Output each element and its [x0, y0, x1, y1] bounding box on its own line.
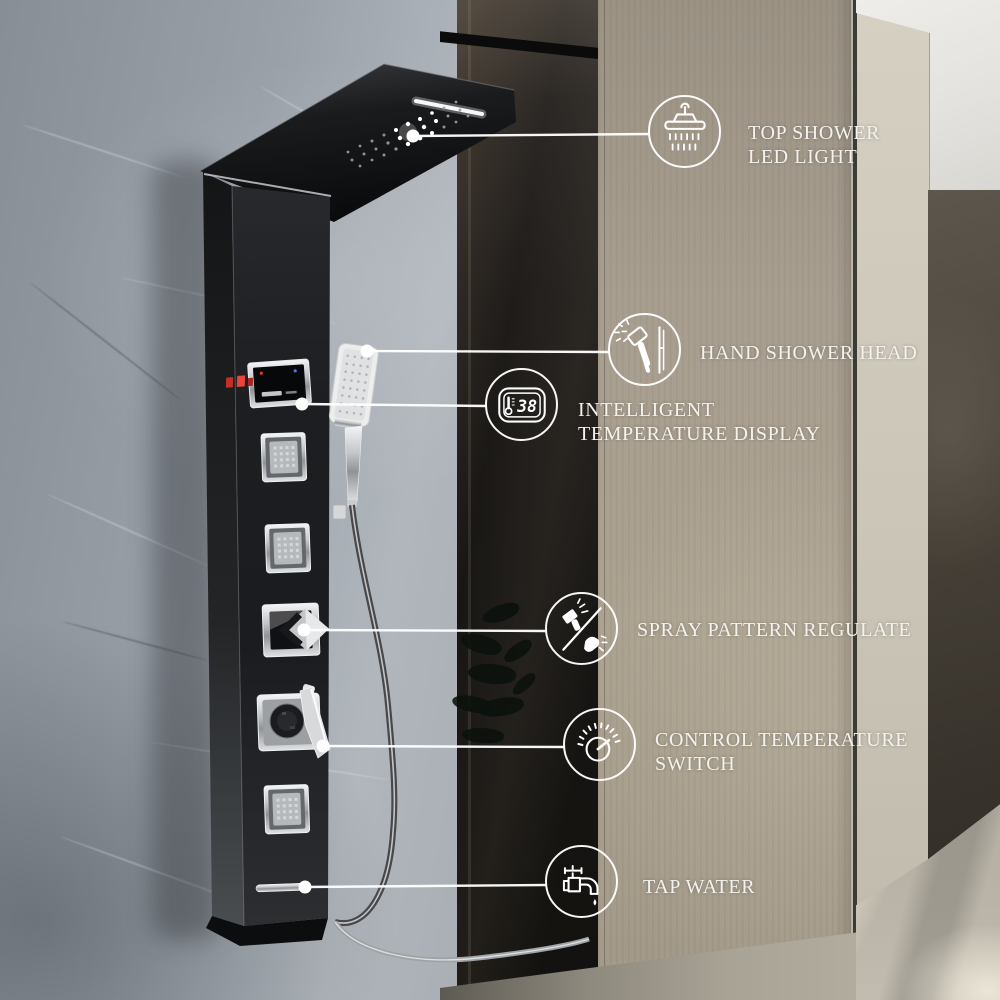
label-line: INTELLIGENT	[578, 399, 820, 423]
callout-dot-top-shower	[407, 130, 420, 143]
label-line: LED LIGHT	[748, 146, 880, 170]
temperature-display-icon: 38	[491, 374, 553, 436]
temperature-dial-icon	[569, 714, 631, 776]
callout-dot-tap-water	[299, 881, 312, 894]
label-tap-water: TAP WATER	[643, 876, 755, 900]
callout-line-tap-water	[305, 885, 547, 887]
label-line: TAP WATER	[643, 876, 755, 900]
label-control-temperature: CONTROL TEMPERATURE SWITCH	[655, 729, 908, 776]
tap-water-icon	[551, 851, 613, 913]
spray-pattern-callout-circle	[545, 592, 618, 665]
hand-shower-icon	[614, 319, 676, 381]
label-line: CONTROL TEMPERATURE	[655, 729, 908, 753]
temperature-display-callout-circle: 38	[485, 368, 558, 441]
callout-line-control-temperature	[323, 746, 565, 747]
label-line: SWITCH	[655, 753, 908, 777]
callout-line-spray-pattern	[304, 630, 547, 631]
hand-shower-callout-circle	[608, 313, 681, 386]
spray-pattern-icon	[551, 598, 613, 660]
top-shower-callout-circle	[648, 95, 721, 168]
callout-dot-spray-pattern	[298, 624, 311, 637]
callout-line-top-shower	[413, 134, 650, 136]
label-top-shower: TOP SHOWER LED LIGHT	[748, 122, 880, 169]
top-shower-led-icon	[654, 101, 716, 163]
label-line: SPRAY PATTERN REGULATE	[637, 619, 911, 643]
callout-line-temperature-display	[302, 404, 487, 406]
tap-water-callout-circle	[545, 845, 618, 918]
label-spray-pattern: SPRAY PATTERN REGULATE	[637, 619, 911, 643]
callout-dot-temperature-display	[296, 398, 309, 411]
label-line: TEMPERATURE DISPLAY	[578, 423, 820, 447]
label-line: HAND SHOWER HEAD	[700, 342, 917, 366]
label-line: TOP SHOWER	[748, 122, 880, 146]
callout-dot-hand-shower	[361, 345, 374, 358]
label-hand-shower: HAND SHOWER HEAD	[700, 342, 917, 366]
callout-dot-control-temperature	[317, 740, 330, 753]
temperature-display-value: 38	[516, 397, 537, 416]
product-feature-photo: 38	[0, 0, 1000, 1000]
control-temperature-callout-circle	[563, 708, 636, 781]
callout-line-hand-shower	[367, 351, 610, 352]
label-temperature-display: INTELLIGENT TEMPERATURE DISPLAY	[578, 399, 820, 446]
